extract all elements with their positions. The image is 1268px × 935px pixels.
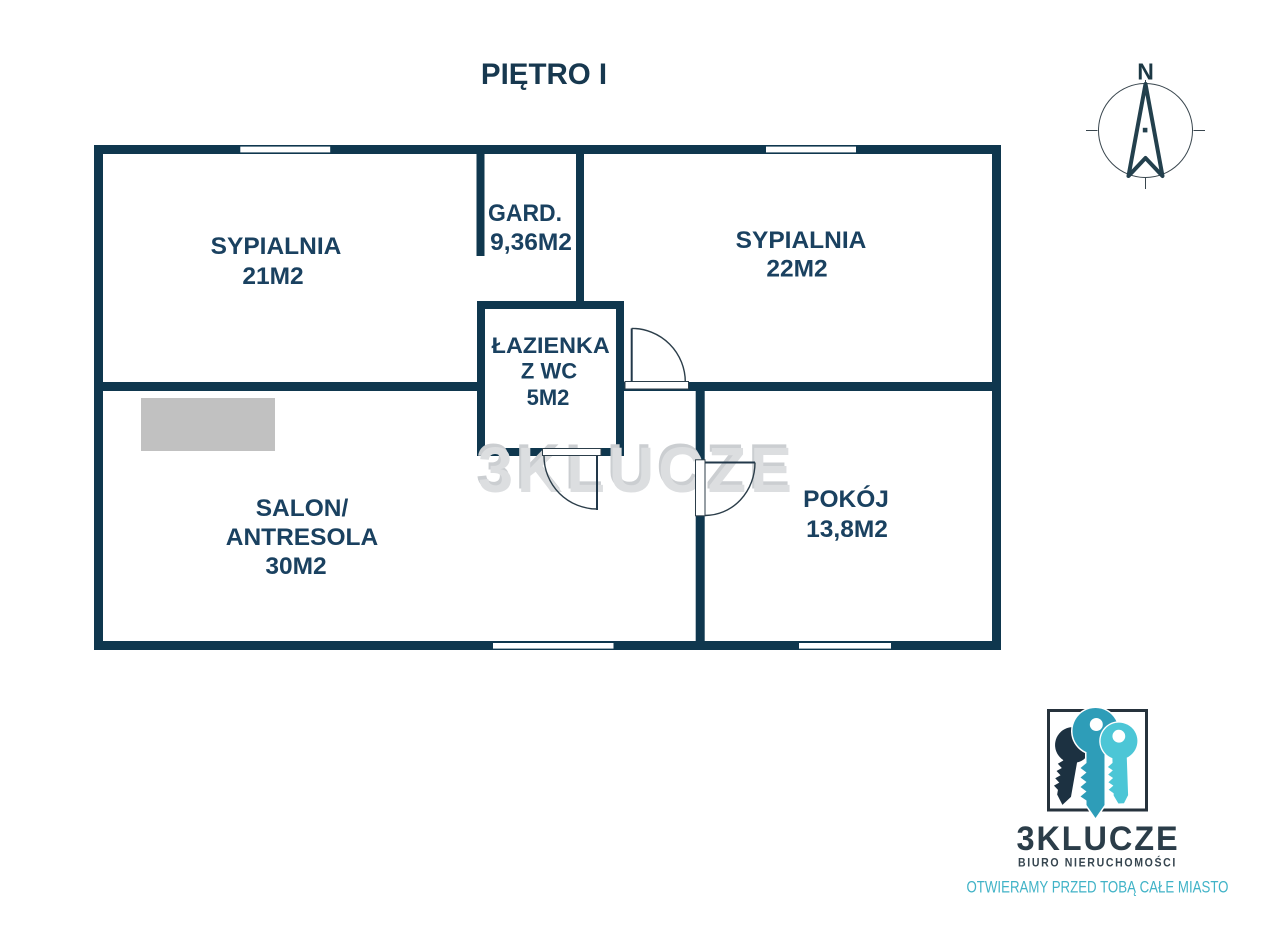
svg-text:Z WC: Z WC — [521, 359, 577, 384]
svg-text:SALON/: SALON/ — [256, 495, 349, 522]
svg-text:N: N — [1137, 59, 1154, 85]
svg-text:PIĘTRO I: PIĘTRO I — [481, 58, 607, 91]
svg-text:OTWIERAMY PRZED TOBĄ CAŁE MIAS: OTWIERAMY PRZED TOBĄ CAŁE MIASTO — [967, 878, 1229, 897]
svg-text:SYPIALNIA: SYPIALNIA — [736, 227, 867, 254]
svg-text:SYPIALNIA: SYPIALNIA — [211, 233, 342, 260]
svg-text:ŁAZIENKA: ŁAZIENKA — [492, 333, 610, 358]
svg-text:13,8M2: 13,8M2 — [806, 516, 888, 543]
svg-text:22M2: 22M2 — [766, 256, 827, 283]
svg-text:3KLUCZE: 3KLUCZE — [1017, 820, 1180, 858]
svg-text:GARD.: GARD. — [488, 200, 562, 227]
svg-text:ANTRESOLA: ANTRESOLA — [226, 524, 379, 551]
svg-text:9,36M2: 9,36M2 — [490, 229, 572, 256]
svg-text:BIURO NIERUCHOMOŚCI: BIURO NIERUCHOMOŚCI — [1018, 857, 1177, 870]
svg-text:POKÓJ: POKÓJ — [803, 485, 889, 513]
svg-text:30M2: 30M2 — [265, 553, 326, 580]
svg-text:5M2: 5M2 — [527, 385, 570, 410]
svg-text:3KLUCZE: 3KLUCZE — [478, 434, 796, 506]
svg-text:21M2: 21M2 — [242, 263, 303, 290]
